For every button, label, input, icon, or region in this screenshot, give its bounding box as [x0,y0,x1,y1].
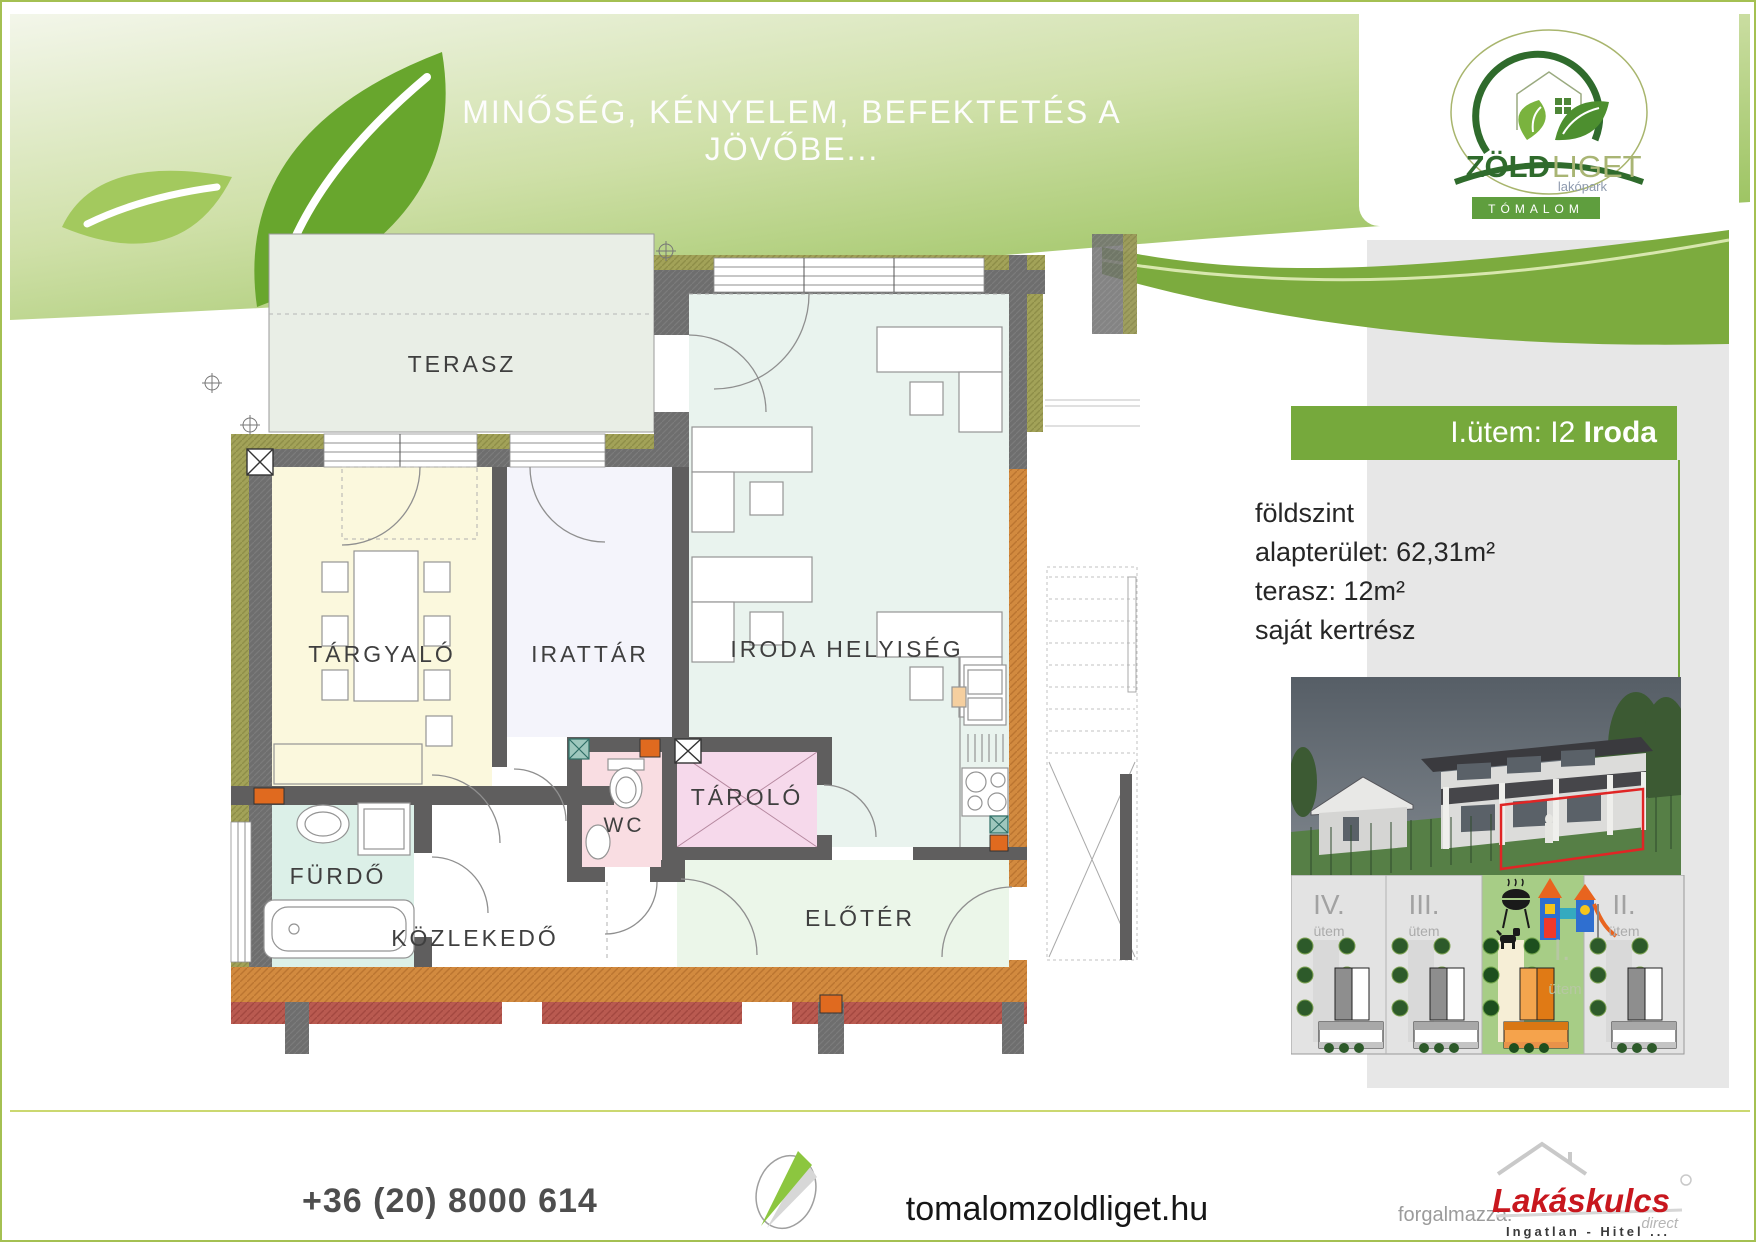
flyer-page: MINŐSÉG, KÉNYELEM, BEFEKTETÉS A JÖVŐBE..… [0,0,1756,1242]
label-terasz: TERASZ [408,351,517,377]
label-irattar: IRATTÁR [531,641,649,667]
lakaskulcs-logo: Lakáskulcs direct Ingatlan - Hitel ... [1490,1122,1700,1240]
brand-name: Lakáskulcs [1492,1182,1670,1219]
unit-banner-name: Iroda [1584,416,1657,449]
room-terasz [269,234,654,432]
footer-website: tomalomzoldliget.hu [832,1190,1282,1229]
logo-text-lakopark: lakópark [1558,179,1608,194]
brand-tagline: Ingatlan - Hitel ... [1506,1224,1670,1239]
header-swoosh [1102,230,1729,345]
brand-roof-icon [1498,1144,1586,1174]
leaf-circle-icon [739,1144,831,1236]
render-gable-wall [1319,807,1407,855]
label-wc: WC [604,814,645,837]
render-person [1545,814,1553,824]
map-phase2-label: II. [1612,889,1635,920]
unit-details: földszint alapterület: 62,31m² terasz: 1… [1255,494,1655,650]
building-render [1291,677,1681,895]
walls-red-footing [231,1002,1027,1024]
header-slogan: MINŐSÉG, KÉNYELEM, BEFEKTETÉS A JÖVŐBE..… [412,94,1172,168]
label-targyalo: TÁRGYALÓ [308,641,456,667]
detail-terrace: terasz: 12m² [1255,572,1655,611]
registered-mark-icon [1681,1175,1691,1185]
room-irattar [507,467,672,737]
label-eloter: ELŐTÉR [805,905,915,931]
logo-text-tomalom: TÓMALOM [1488,201,1584,216]
detail-area: alapterület: 62,31m² [1255,533,1655,572]
logo-leaf-icon [1555,101,1609,140]
map-phase1-label: I. [1554,934,1571,967]
map-phase1-utem: ütem [1548,981,1581,998]
map-phase3-label: III. [1408,889,1439,920]
map-phase3-utem: ütem [1408,923,1439,939]
neighbor-staircase [1045,234,1140,960]
unit-banner: I.ütem: I2 Iroda [1291,406,1677,460]
map-phase4-utem: ütem [1313,923,1344,939]
label-iroda: IRODA HELYISÉG [730,636,963,662]
label-tarolo: TÁROLÓ [691,784,804,810]
label-furdo: FÜRDŐ [290,863,387,889]
map-phase4-label: IV. [1313,889,1345,920]
site-map: IV. ütem III. ütem I. ütem II. ütem [1291,875,1685,1055]
logo-card: ZÖLD LIGET lakópark TÓMALOM [1359,10,1739,226]
label-kozlekedo: KÖZLEKEDŐ [391,925,559,951]
unit-banner-prefix: I.ütem: I2 [1450,416,1583,449]
logo-text-zold: ZÖLD [1466,149,1550,184]
detail-garden: saját kertrész [1255,611,1655,650]
detail-floor: földszint [1255,494,1655,533]
house-window-icon [1555,98,1571,114]
logo-leaf-icon [1518,100,1545,140]
footer-separator [10,1110,1750,1112]
footer-phone: +36 (20) 8000 614 [302,1182,598,1221]
wall-accent-orange [820,995,842,1013]
render-person-body [1545,823,1553,843]
zoldliget-logo: ZÖLD LIGET lakópark TÓMALOM [1359,10,1739,226]
map-phase2-utem: ütem [1608,923,1639,939]
floor-plan: TERASZ TÁRGYALÓ IRATTÁR IRODA HELYISÉG W… [182,197,1162,1102]
